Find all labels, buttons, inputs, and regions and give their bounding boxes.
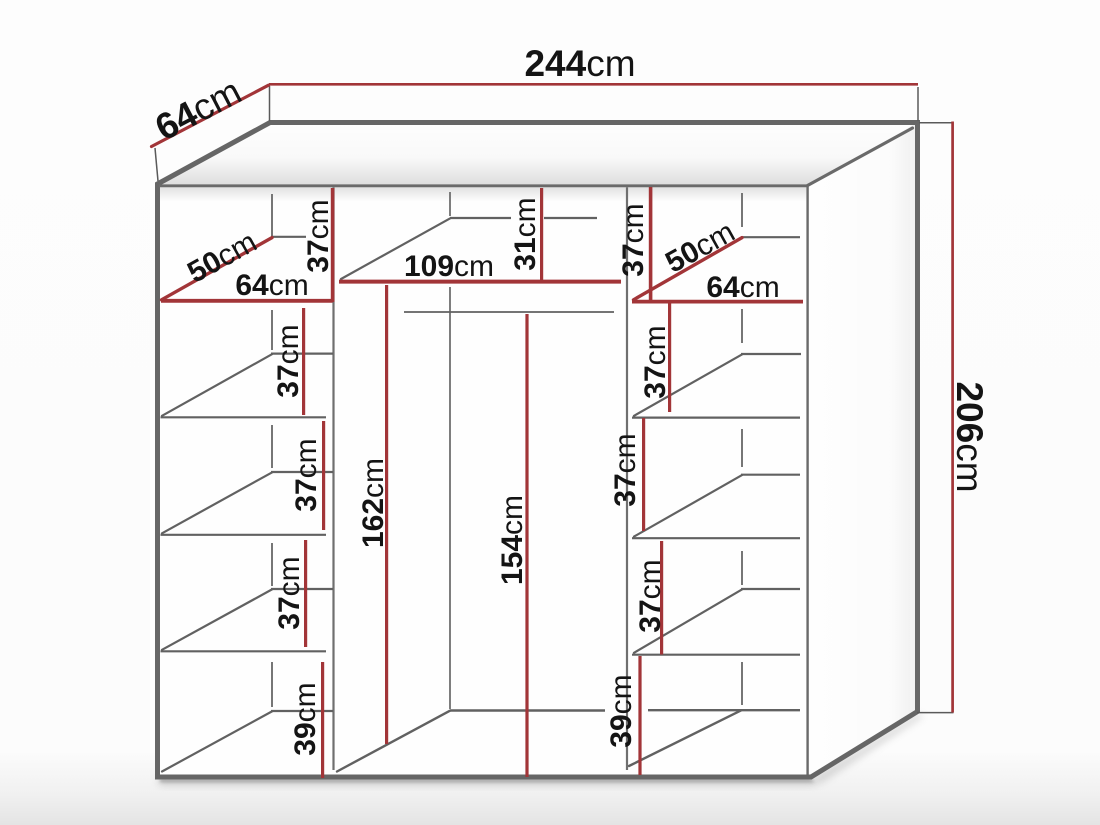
svg-text:109cm: 109cm — [404, 250, 494, 283]
svg-text:37cm: 37cm — [272, 324, 305, 397]
svg-text:39cm: 39cm — [605, 674, 638, 747]
svg-text:37cm: 37cm — [290, 438, 323, 511]
svg-text:64cm: 64cm — [148, 70, 247, 148]
svg-text:244cm: 244cm — [524, 43, 635, 84]
svg-text:37cm: 37cm — [302, 199, 335, 272]
svg-text:37cm: 37cm — [273, 556, 306, 629]
svg-text:37cm: 37cm — [609, 433, 642, 506]
svg-text:37cm: 37cm — [634, 559, 667, 632]
svg-text:31cm: 31cm — [509, 197, 542, 270]
svg-text:162cm: 162cm — [357, 458, 390, 548]
svg-text:37cm: 37cm — [639, 325, 672, 398]
svg-text:154cm: 154cm — [496, 495, 529, 585]
svg-text:206cm: 206cm — [950, 381, 991, 492]
svg-text:39cm: 39cm — [289, 682, 322, 755]
svg-text:64cm: 64cm — [706, 271, 779, 304]
svg-text:64cm: 64cm — [235, 269, 308, 302]
svg-text:37cm: 37cm — [617, 203, 650, 276]
